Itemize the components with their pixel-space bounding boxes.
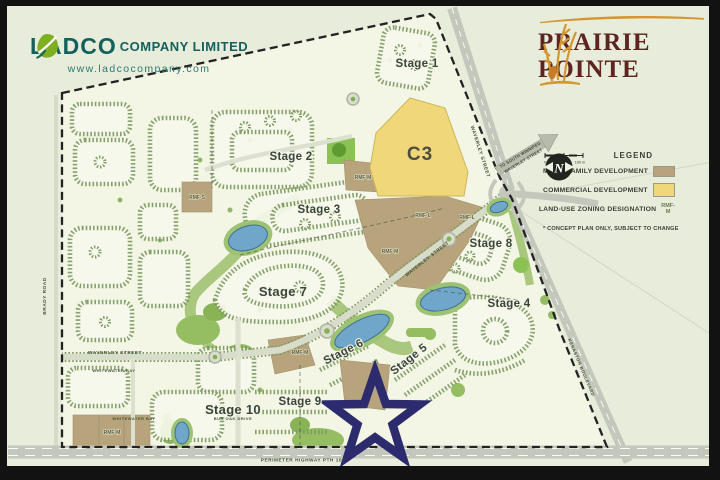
- svg-text:100 m: 100 m: [575, 161, 585, 165]
- frame-top: [0, 0, 720, 6]
- street-label-perimeter-highway: PERIMETER HIGHWAY PTH 100: [261, 458, 345, 464]
- frame-left: [0, 0, 7, 480]
- street-label-whitewater-bay-2: WHITEWATER BAY: [112, 416, 155, 421]
- street-label-brady-road: BRADY ROAD: [42, 277, 48, 314]
- commercial-swatch: [653, 183, 675, 197]
- concept-note: * CONCEPT PLAN ONLY, SUBJECT TO CHANGE: [543, 226, 675, 232]
- stage-label-9: Stage 9: [278, 396, 321, 408]
- ladco-logo: LADCO COMPANY LIMITED www.ladcocompany.c…: [30, 33, 248, 75]
- stage-label-4: Stage 4: [487, 298, 530, 310]
- compass-icon: N: [543, 151, 575, 183]
- site-plan-page: TO SOUTH WINNIPEG WAVERLEY STREET C3 Sta…: [0, 0, 720, 480]
- zone-label-rmf-m-3: RMF-M: [292, 350, 309, 356]
- legend-row-zoning: LAND-USE ZONING DESIGNATION RMF-M: [543, 203, 675, 215]
- zone-label-rmf-m-4: RMF-M: [104, 430, 121, 436]
- ladco-website: www.ladcocompany.com: [30, 63, 248, 75]
- zone-label-rmf-m-2: RMF-M: [382, 249, 399, 255]
- street-label-whitewater-bay-1: WHITEWATER BAY: [92, 368, 135, 373]
- zone-label-rmf-l-2: RMF-L: [459, 215, 475, 221]
- stage-label-3: Stage 3: [297, 204, 340, 216]
- zone-label-rmf-m-1: RMF-M: [355, 175, 372, 181]
- zone-label-c3: C3: [407, 144, 433, 165]
- stage-label-10: Stage 10: [205, 402, 261, 417]
- stage-label-7: Stage 7: [259, 284, 307, 299]
- legend: LEGEND MULTI-FAMILY DEVELOPMENT COMMERCI…: [543, 151, 675, 244]
- ladco-name-suffix: COMPANY LIMITED: [120, 39, 248, 54]
- wheat-icon: [538, 18, 582, 88]
- stage-label-8: Stage 8: [469, 238, 512, 250]
- prairie-pointe-logo: PRAIRIE POINTE: [538, 18, 710, 83]
- compass-north-label: N: [553, 161, 564, 176]
- stage-label-1: Stage 1: [395, 58, 438, 70]
- stage-label-2: Stage 2: [269, 151, 312, 163]
- zoning-designation-value: RMF-M: [661, 203, 675, 215]
- multifamily-swatch: [653, 166, 675, 177]
- frame-bottom: [0, 466, 720, 480]
- street-label-waverley-west: WAVERLEY STREET: [88, 350, 142, 356]
- logo-underline-swoosh: [538, 14, 706, 24]
- zone-label-rmf-s: RMF-S: [189, 195, 205, 201]
- street-label-bur-oak: BUR OAK DRIVE: [214, 416, 253, 421]
- legend-row-commercial: COMMERCIAL DEVELOPMENT: [543, 183, 675, 197]
- frame-right: [709, 0, 720, 480]
- zone-label-rmf-l-1: RMF-L: [415, 213, 431, 219]
- leaf-icon: [35, 33, 59, 59]
